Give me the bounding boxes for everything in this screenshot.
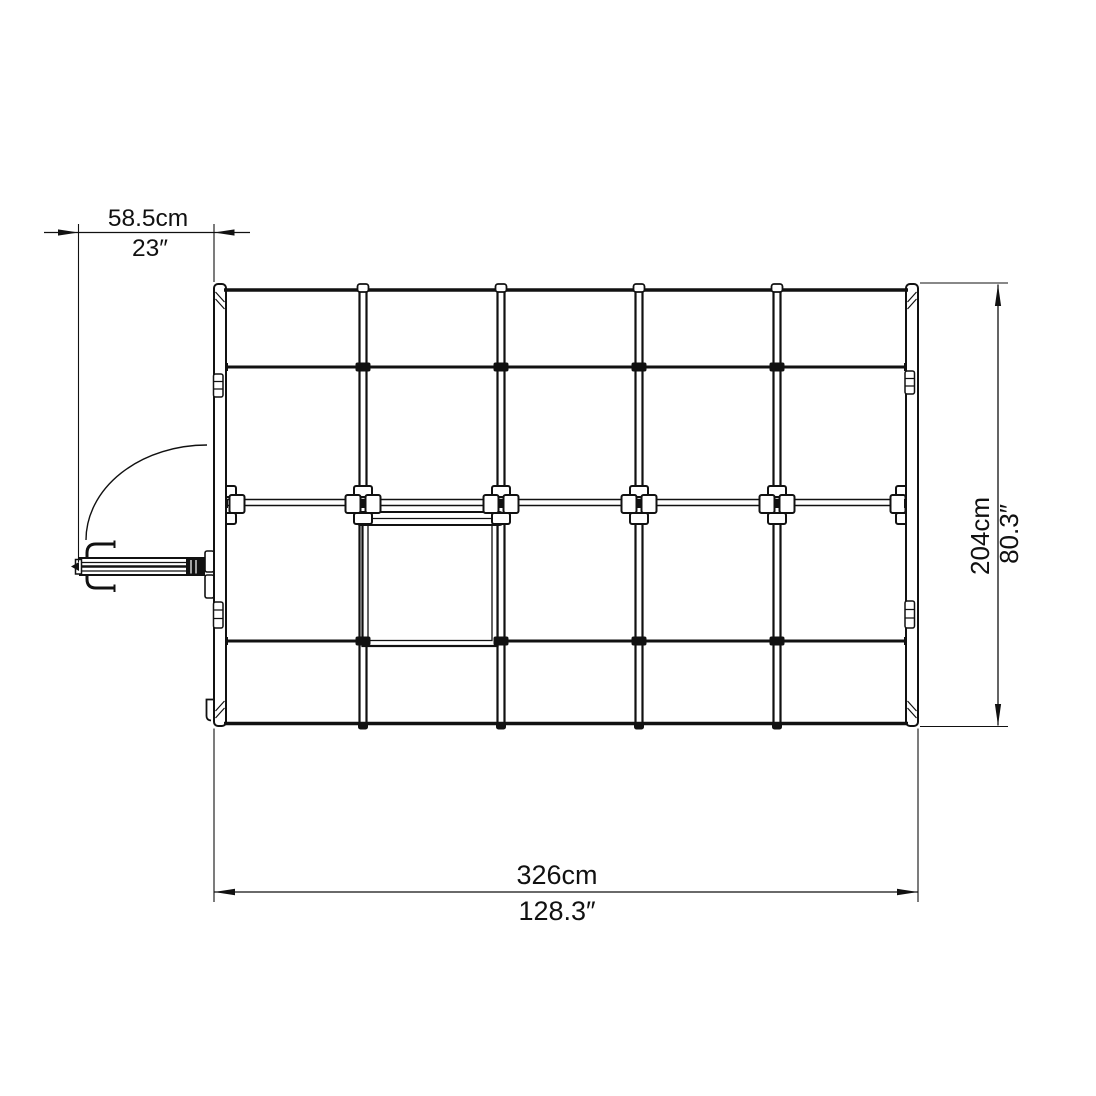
arrowhead-left bbox=[214, 889, 235, 895]
right-wall-bracket-mark-upper bbox=[905, 371, 915, 394]
gable-edges bbox=[224, 284, 908, 730]
purlin-joints bbox=[221, 363, 911, 646]
door-wall-plate-lower bbox=[205, 575, 214, 598]
extension-lines bbox=[79, 224, 215, 562]
door-assembly bbox=[71, 445, 214, 598]
door-wall-plate-upper bbox=[205, 551, 214, 572]
arrowhead-top bbox=[995, 285, 1001, 307]
ridge-beam bbox=[226, 500, 906, 506]
arrowhead-right bbox=[897, 889, 918, 895]
length-metric-label: 326cm bbox=[516, 860, 597, 890]
door-projection-imperial-label: 23″ bbox=[132, 235, 168, 262]
right-wall bbox=[906, 284, 918, 726]
technical-drawing-canvas: 58.5cm 23″ 326cm 128.3″ 204cm 80.3″ bbox=[0, 0, 1096, 1096]
left-wall-hinge-mark-lower bbox=[214, 602, 224, 628]
ridge-connector bbox=[760, 486, 795, 524]
greenhouse-top-view-plan: 58.5cm 23″ 326cm 128.3″ 204cm 80.3″ bbox=[0, 0, 1096, 1096]
left-wall-foot bbox=[207, 700, 214, 721]
depth-metric-label: 204cm bbox=[965, 497, 995, 575]
length-imperial-label: 128.3″ bbox=[518, 896, 596, 926]
arrowhead-left bbox=[58, 229, 79, 235]
dimension-overall-length: 326cm 128.3″ bbox=[214, 729, 918, 927]
dimension-overall-depth: 204cm 80.3″ bbox=[920, 283, 1024, 727]
depth-imperial-label: 80.3″ bbox=[994, 504, 1024, 564]
rafters bbox=[360, 292, 781, 722]
ridge-connector bbox=[622, 486, 657, 524]
door-projection-metric-label: 58.5cm bbox=[108, 205, 188, 232]
right-wall-bracket-mark-lower bbox=[905, 601, 915, 628]
left-wall bbox=[214, 284, 226, 726]
rafter-lines bbox=[360, 292, 781, 722]
purlins bbox=[226, 367, 906, 641]
door-swing-arc bbox=[86, 445, 207, 540]
roof-vent bbox=[356, 512, 504, 646]
arrowhead-right bbox=[214, 229, 235, 235]
door-hinge-block bbox=[186, 558, 203, 576]
arrowhead-bottom bbox=[995, 704, 1001, 726]
ridge-lines bbox=[226, 500, 906, 506]
left-wall-hinge-mark-upper bbox=[214, 374, 224, 397]
vent-outer-frame bbox=[363, 518, 498, 646]
